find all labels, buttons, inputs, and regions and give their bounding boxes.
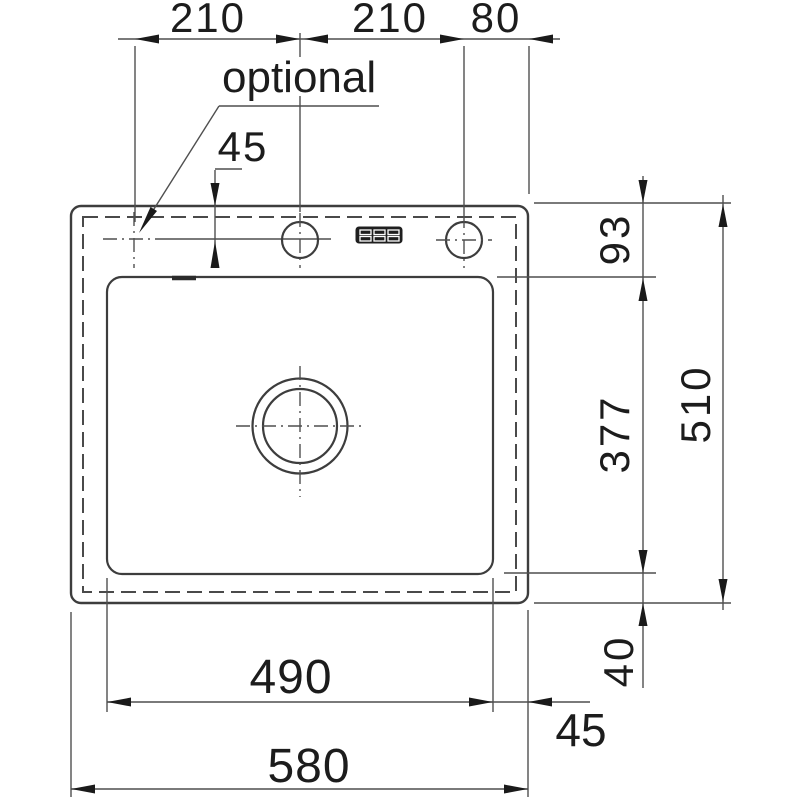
dim-label-top-left-210: 210 (170, 0, 246, 41)
optional-label: optional (222, 53, 376, 102)
dim-label-top-right-80: 80 (471, 0, 522, 41)
drawing-canvas: 210 210 80 optional 45 93 377 510 40 490… (0, 0, 800, 800)
dim-label-right-377: 377 (591, 394, 638, 473)
dim-label-top-center-210: 210 (352, 0, 428, 41)
dim-label-bottom-580: 580 (267, 740, 350, 793)
dim-label-bottom-right-45: 45 (555, 704, 606, 756)
sink-dimension-drawing: 210 210 80 optional 45 93 377 510 40 490… (0, 0, 800, 800)
overflow-slot (356, 227, 402, 243)
optional-leader-arrowhead (139, 207, 157, 233)
drain (236, 366, 363, 497)
dim-label-right-40: 40 (595, 635, 642, 688)
dim-label-right-93: 93 (591, 213, 638, 266)
dimension-labels: 210 210 80 optional 45 93 377 510 40 490… (170, 0, 719, 793)
dim-label-hole-offset-45: 45 (218, 123, 269, 170)
dim-label-right-510: 510 (672, 364, 719, 443)
holes (103, 212, 492, 497)
dim-label-bottom-490: 490 (249, 651, 332, 704)
